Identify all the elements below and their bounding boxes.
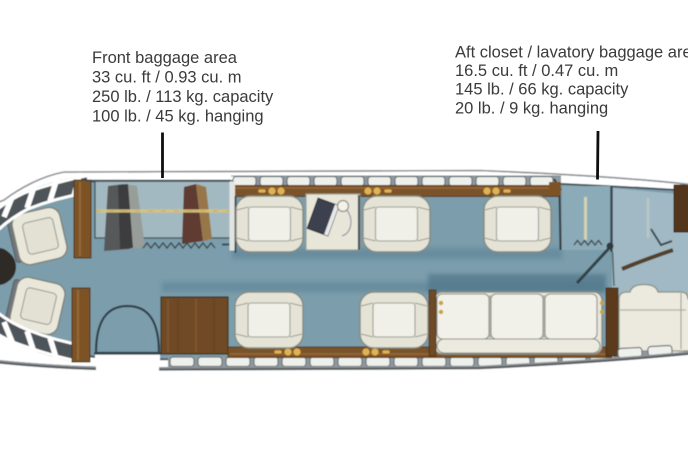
svg-text:Aft closet / lavatory baggage: Aft closet / lavatory baggage area [455,44,688,62]
svg-text:250 lb. / 113 kg. capacity: 250 lb. / 113 kg. capacity [92,88,274,106]
svg-text:16.5 cu. ft / 0.47 cu. m: 16.5 cu. ft / 0.47 cu. m [455,62,618,80]
svg-text:33 cu. ft / 0.93 cu. m: 33 cu. ft / 0.93 cu. m [92,69,242,87]
svg-text:20 lb. / 9 kg. hanging: 20 lb. / 9 kg. hanging [455,100,608,118]
svg-text:Front baggage area: Front baggage area [92,49,238,67]
svg-text:145 lb. / 66 kg. capacity: 145 lb. / 66 kg. capacity [455,81,629,99]
svg-text:100 lb. / 45 kg. hanging: 100 lb. / 45 kg. hanging [92,108,264,126]
